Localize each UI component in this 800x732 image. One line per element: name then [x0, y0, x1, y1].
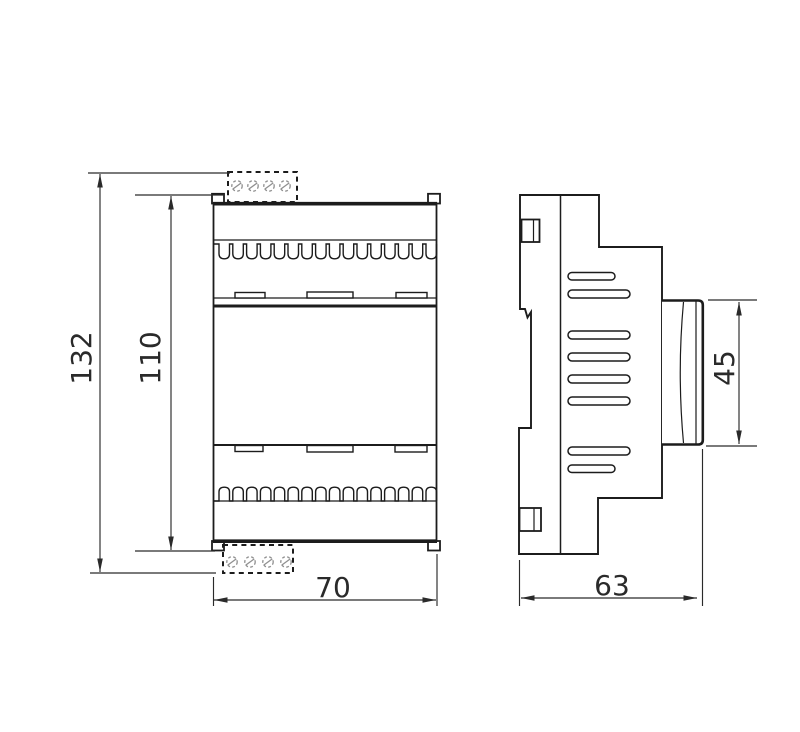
dimension-value: 63	[594, 569, 630, 602]
screw-slot	[246, 559, 255, 565]
vent-slot	[568, 397, 630, 405]
latch-slot	[235, 293, 265, 299]
dimension-value: 132	[65, 331, 98, 384]
arrowhead-down	[97, 559, 103, 573]
dimension-front-panel-height: 45	[706, 300, 757, 446]
latch-slot	[235, 446, 263, 452]
top-connector-screws	[232, 181, 290, 191]
vent-slot	[568, 447, 630, 455]
vent-slot	[568, 273, 615, 281]
screw-slot	[228, 559, 237, 565]
arrowhead-right	[684, 595, 698, 601]
arrowhead-up	[97, 174, 103, 188]
vent-slot	[568, 353, 630, 361]
screw-slot	[282, 559, 291, 565]
bottom-connector-dashed-box	[223, 545, 293, 573]
screw-slot	[281, 183, 290, 189]
latch-slot	[396, 293, 427, 299]
screw-slot	[265, 183, 274, 189]
dimension-value: 45	[708, 350, 741, 386]
side-view	[519, 195, 703, 554]
arrowhead-up	[736, 302, 742, 316]
bottom-din-clip	[520, 508, 542, 531]
din-module-dimension-drawing: 132 110 70 63	[0, 0, 800, 732]
arrowhead-down	[168, 537, 174, 551]
vent-slot	[568, 375, 630, 383]
latch-slot	[395, 446, 427, 453]
top-connector-dashed-box	[228, 172, 297, 202]
vent-slot	[568, 331, 630, 339]
latch-slot	[307, 292, 353, 298]
top-din-clip	[522, 220, 540, 243]
arrowhead-right	[423, 597, 437, 603]
vent-slot	[568, 465, 615, 473]
dimension-width: 70	[214, 554, 438, 606]
upper-latch-slots	[235, 292, 427, 298]
vent-slot	[568, 290, 630, 298]
latch-slot	[307, 446, 353, 453]
arrowhead-down	[736, 431, 742, 445]
dimension-value: 110	[134, 331, 167, 384]
front-view	[212, 172, 440, 573]
dimension-body-height: 110	[134, 195, 225, 551]
screw-slot	[233, 183, 242, 189]
screw-slot	[264, 559, 273, 565]
bottom-connector-screws	[227, 557, 291, 567]
dimension-value: 70	[315, 571, 351, 604]
arrowhead-left	[214, 597, 228, 603]
screw-slot	[249, 183, 258, 189]
arrowhead-up	[168, 196, 174, 210]
arrowhead-left	[521, 595, 535, 601]
technical-drawing-page: 132 110 70 63	[0, 0, 800, 732]
